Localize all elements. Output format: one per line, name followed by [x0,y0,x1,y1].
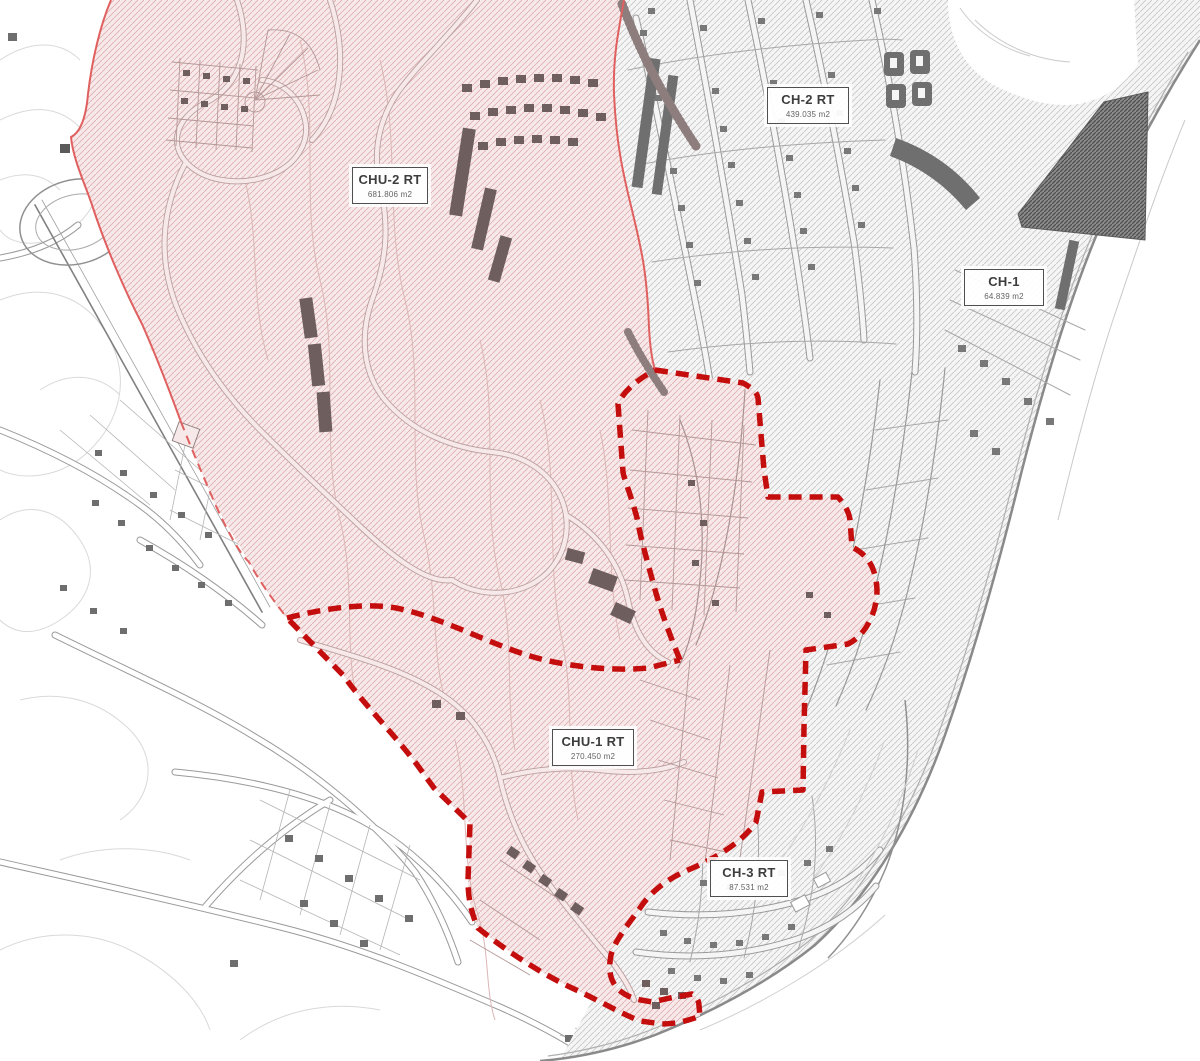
zoning-map-page: CHU-2 RT 681.806 m2 CH-2 RT 439.035 m2 C… [0,0,1200,1061]
zone-area: 87.531 m2 [713,883,785,892]
zone-name: CH-2 RT [770,93,846,107]
zone-area: 270.450 m2 [555,752,631,761]
zone-label-chu1-rt: CHU-1 RT 270.450 m2 [552,729,634,766]
zone-name: CH-1 [967,275,1041,289]
zone-label-chu2-rt: CHU-2 RT 681.806 m2 [352,167,428,204]
zone-name: CHU-2 RT [355,173,425,187]
zone-label-ch2-rt: CH-2 RT 439.035 m2 [767,87,849,124]
zone-area: 64.839 m2 [967,292,1041,301]
zone-name: CH-3 RT [713,866,785,880]
zone-area: 439.035 m2 [770,110,846,119]
zone-label-ch3-rt: CH-3 RT 87.531 m2 [710,860,788,897]
zone-name: CHU-1 RT [555,735,631,749]
zone-area: 681.806 m2 [355,190,425,199]
zone-label-ch1: CH-1 64.839 m2 [964,269,1044,306]
map-canvas [0,0,1200,1061]
